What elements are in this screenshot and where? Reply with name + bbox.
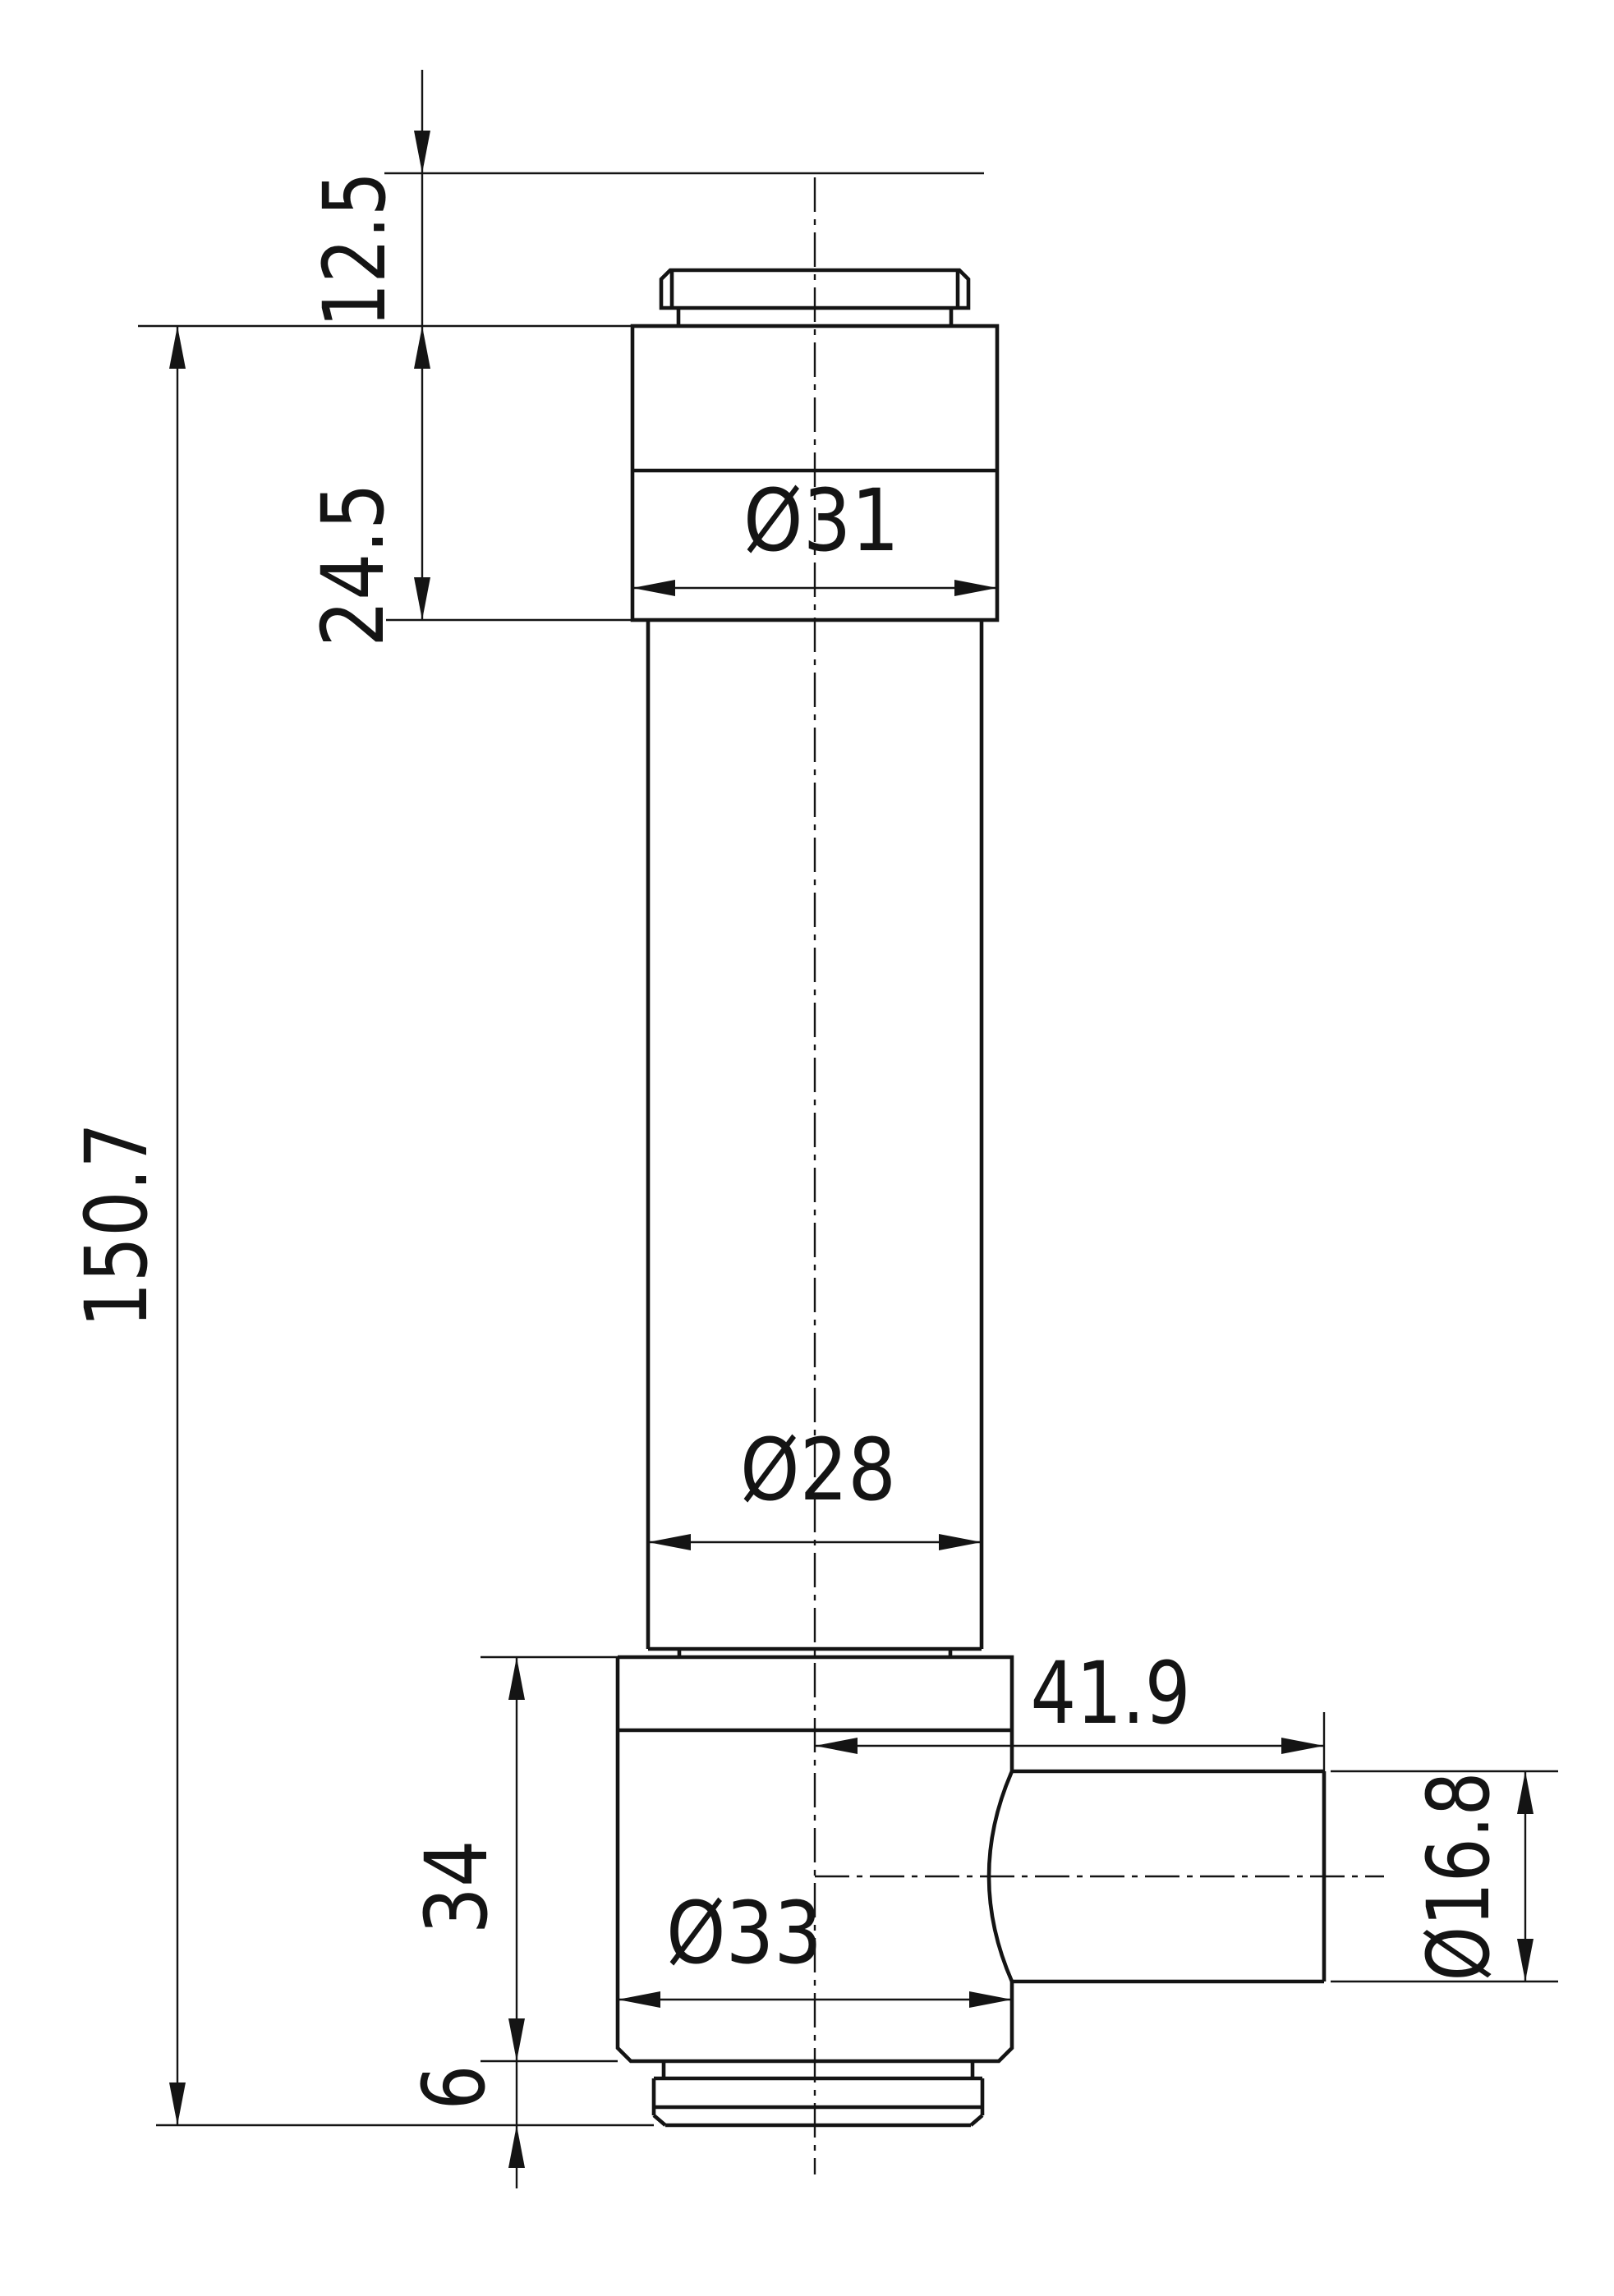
dim-body-height-label: 34 <box>407 1840 507 1935</box>
dim-port-diameter-label: Ø16.8 <box>1409 1772 1509 1981</box>
arrowhead-head-top <box>414 326 430 369</box>
dim-stem-diameter-label: Ø28 <box>740 1420 896 1520</box>
arrowhead-head-dia-right <box>954 580 997 596</box>
flange-chamfer-left <box>654 2115 665 2125</box>
dimension-port-length: 41.9 <box>815 1643 1324 1754</box>
dim-overall-height-label: 150.7 <box>67 1123 167 1328</box>
arrowhead-body-dia-right <box>969 1991 1012 2008</box>
dim-body-diameter-label: Ø33 <box>666 1883 822 1983</box>
arrowhead-overall-bottom <box>169 2082 186 2125</box>
arrowhead-port-dia-bottom <box>1517 1939 1534 1981</box>
dimension-overall-height: 150.7 <box>67 326 186 2125</box>
technical-drawing-canvas: 150.7 12.5 24.5 Ø31 Ø28 41.9 34 <box>0 0 1614 2296</box>
dim-ref-top-label: 12.5 <box>305 172 405 328</box>
dimension-port-diameter: Ø16.8 <box>1409 1771 1534 1981</box>
arrowhead-port-length-left <box>815 1738 858 1754</box>
arrowhead-port-length-right <box>1281 1738 1324 1754</box>
arrowhead-stem-dia-left <box>648 1534 691 1550</box>
extension-lines <box>138 173 1558 2125</box>
flange-chamfer-right <box>971 2115 982 2125</box>
dim-port-length-label: 41.9 <box>1031 1643 1191 1743</box>
bottom-flange <box>654 2061 982 2125</box>
arrowhead-flange-bottom <box>508 2125 525 2168</box>
arrowhead-ref-top <box>414 131 430 173</box>
arrowhead-head-dia-left <box>632 580 675 596</box>
dim-head-diameter-label: Ø31 <box>743 471 899 571</box>
arrowhead-head-bottom <box>414 577 430 620</box>
dimension-body-height: 34 <box>407 1657 525 2061</box>
centerlines <box>815 177 1384 2174</box>
arrowhead-stem-dia-right <box>939 1534 982 1550</box>
dim-head-height-label: 24.5 <box>303 483 403 647</box>
arrowhead-body-dia-left <box>618 1991 660 2008</box>
dimension-head-height: 24.5 <box>303 326 430 647</box>
arrowhead-body-bottom <box>508 2018 525 2061</box>
arrowhead-port-dia-top <box>1517 1771 1534 1814</box>
arrowhead-body-top <box>508 1657 525 1700</box>
drawing-sheet: 150.7 12.5 24.5 Ø31 Ø28 41.9 34 <box>0 0 1614 2296</box>
dimension-body-diameter: Ø33 <box>618 1883 1012 2008</box>
dim-flange-height-label: 6 <box>404 2065 504 2110</box>
arrowhead-overall-top <box>169 326 186 369</box>
